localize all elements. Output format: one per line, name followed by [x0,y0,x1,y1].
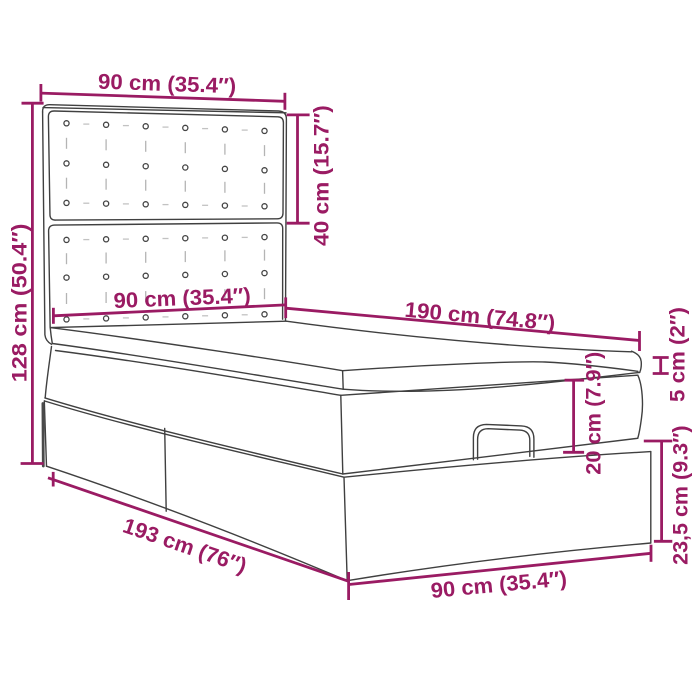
svg-text:5 cm (2″): 5 cm (2″) [666,307,690,402]
svg-text:90 cm (35.4″): 90 cm (35.4″) [98,70,237,99]
svg-text:20 cm (7.9″): 20 cm (7.9″) [582,352,606,475]
svg-text:23,5 cm (9.3″): 23,5 cm (9.3″) [669,425,693,565]
svg-text:40 cm (15.7″): 40 cm (15.7″) [310,105,334,246]
svg-text:128 cm (50.4″): 128 cm (50.4″) [8,224,32,383]
